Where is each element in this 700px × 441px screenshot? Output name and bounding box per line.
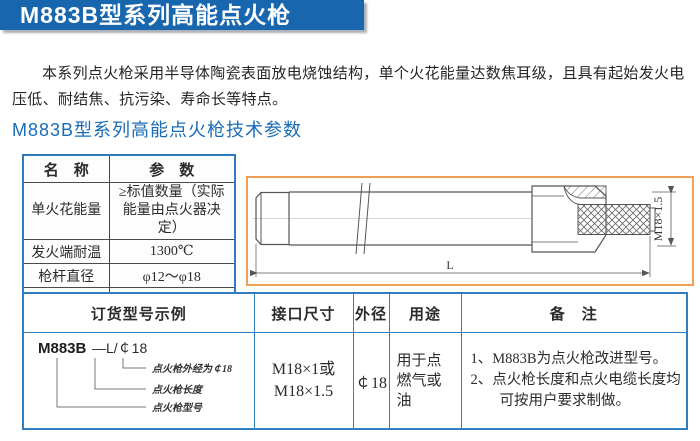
order-col-interface-size: 接口尺寸 xyxy=(254,293,353,333)
callout-leader-line xyxy=(57,358,146,407)
callout-leader-line xyxy=(123,358,146,368)
table-row: 枪杆直径 φ12～φ18 xyxy=(23,264,235,288)
table-row: 单火花能量 ≥标值数量（实际能量由点火器决定） xyxy=(23,183,235,240)
table-row: M883B —L/￠18 点火枪外经为￠18 点火枪长度 点火枪型号 M18×1… xyxy=(23,333,687,430)
spec-table-container: 名 称 参 数 单火花能量 ≥标值数量（实际能量由点火器决定） 发火端耐温 13… xyxy=(22,154,236,313)
table-row: 发火端耐温 1300℃ xyxy=(23,240,235,264)
length-dimension-label: L xyxy=(446,258,453,272)
technical-drawing-panel: M18×1.5 L xyxy=(246,176,694,286)
order-table-container: 订货型号示例 接口尺寸 外径 用途 备 注 M883B —L/￠18 点火枪外经… xyxy=(22,292,688,430)
interface-size-option-1: M18×1或 xyxy=(256,359,352,381)
spec-value-temp: 1300℃ xyxy=(109,240,235,264)
usage-text: 用于点燃气或油 xyxy=(391,351,460,411)
model-example-cell: M883B —L/￠18 点火枪外经为￠18 点火枪长度 点火枪型号 xyxy=(23,333,254,430)
spec-col-name: 名 称 xyxy=(23,155,109,183)
callout-gun-model: 点火枪型号 xyxy=(151,402,203,414)
remark-1: 1、M883B为点火枪改进型号。 xyxy=(471,349,682,370)
spec-name-rod-diameter: 枪杆直径 xyxy=(23,264,109,288)
spec-value-rod-diameter: φ12～φ18 xyxy=(109,264,235,288)
callout-gun-length: 点火枪长度 xyxy=(151,384,204,396)
model-suffix: —L/￠18 xyxy=(92,340,147,356)
spec-name-temp: 发火端耐温 xyxy=(23,240,109,264)
outer-diameter-cell: ￠18 xyxy=(353,333,389,430)
remark-2: 2、点火枪长度和点火电缆长度均可按用户要求制做。 xyxy=(471,370,682,412)
order-col-remarks: 备 注 xyxy=(461,293,687,333)
page-title-bar: M883B型系列高能点火枪 xyxy=(0,0,364,30)
callout-outer-diameter: 点火枪外经为￠18 xyxy=(151,363,232,375)
spec-value-spark-energy: ≥标值数量（实际能量由点火器决定） xyxy=(109,183,235,240)
spec-header-row: 名 称 参 数 xyxy=(23,155,235,183)
usage-cell: 用于点燃气或油 xyxy=(389,333,461,430)
callout-leader-line xyxy=(95,358,146,389)
spec-col-param: 参 数 xyxy=(109,155,235,183)
order-col-outer-diameter: 外径 xyxy=(353,293,389,333)
thread-stub xyxy=(578,205,650,235)
interface-size-cell: M18×1或 M18×1.5 xyxy=(254,333,353,430)
thread-dimension-label: M18×1.5 xyxy=(651,197,665,241)
model-number: M883B xyxy=(38,340,87,357)
page-title: M883B型系列高能点火枪 xyxy=(20,2,291,28)
spec-table: 名 称 参 数 单火花能量 ≥标值数量（实际能量由点火器决定） 发火端耐温 13… xyxy=(22,154,236,313)
model-number-breakdown: M883B —L/￠18 点火枪外经为￠18 点火枪长度 点火枪型号 xyxy=(24,333,253,423)
order-header-row: 订货型号示例 接口尺寸 外径 用途 备 注 xyxy=(23,293,687,333)
remarks-list: 1、M883B为点火枪改进型号。 2、点火枪长度和点火电缆长度均可按用户要求制做… xyxy=(463,347,686,414)
order-col-usage: 用途 xyxy=(389,293,461,333)
remarks-cell: 1、M883B为点火枪改进型号。 2、点火枪长度和点火电缆长度均可按用户要求制做… xyxy=(461,333,687,430)
intro-paragraph: 本系列点火枪采用半导体陶瓷表面放电烧蚀结构，单个火花能量达数焦耳级，且具有起始发… xyxy=(12,61,694,113)
section-heading: M883B型系列高能点火枪技术参数 xyxy=(12,116,302,142)
spec-name-spark-energy: 单火花能量 xyxy=(23,183,109,240)
ignition-gun-drawing: M18×1.5 L xyxy=(248,178,692,284)
interface-size-option-2: M18×1.5 xyxy=(256,381,352,403)
order-table: 订货型号示例 接口尺寸 外径 用途 备 注 M883B —L/￠18 点火枪外经… xyxy=(22,292,688,430)
order-col-model-example: 订货型号示例 xyxy=(23,293,254,333)
